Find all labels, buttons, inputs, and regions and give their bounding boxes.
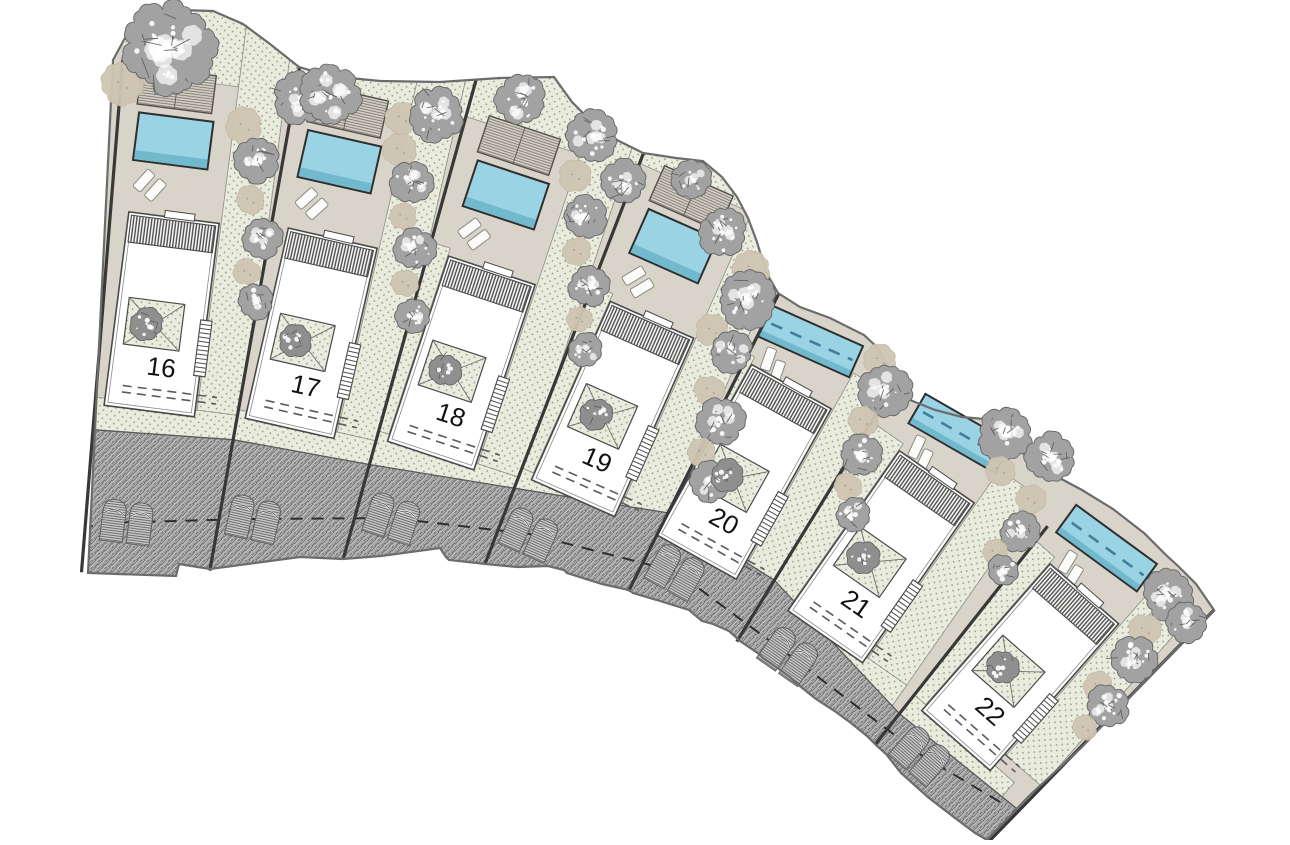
svg-text:16: 16 — [145, 351, 177, 384]
